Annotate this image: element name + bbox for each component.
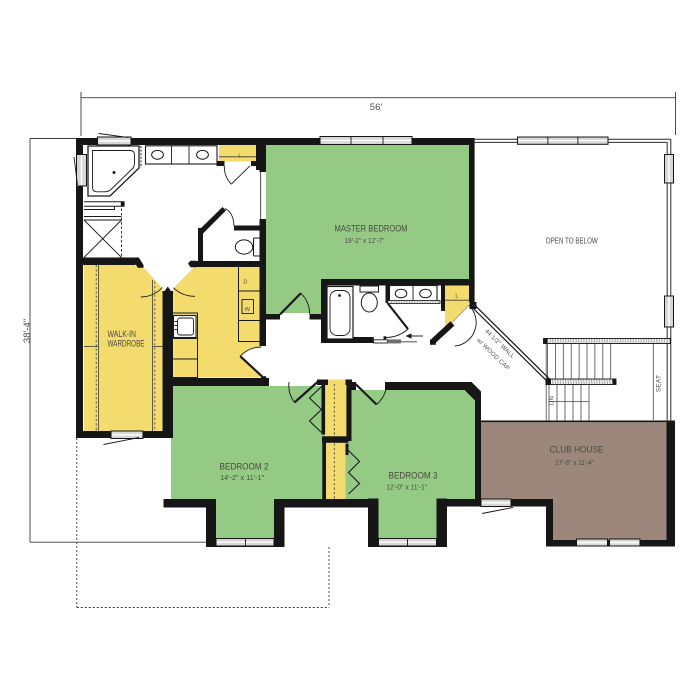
svg-text:CLUB HOUSE: CLUB HOUSE xyxy=(550,445,604,455)
svg-text:14'-2" x 11'-1": 14'-2" x 11'-1" xyxy=(220,475,264,482)
svg-text:MASTER BEDROOM: MASTER BEDROOM xyxy=(335,224,408,234)
svg-text:WARDROBE: WARDROBE xyxy=(108,339,145,349)
svg-text:WALK-IN: WALK-IN xyxy=(108,329,137,339)
svg-text:OPEN TO BELOW: OPEN TO BELOW xyxy=(546,236,598,246)
svg-text:38'-4": 38'-4" xyxy=(22,319,33,343)
svg-text:17'-8" x 11'-4": 17'-8" x 11'-4" xyxy=(555,460,594,467)
svg-text:L: L xyxy=(455,294,458,300)
svg-text:DN: DN xyxy=(550,396,556,405)
svg-text:W: W xyxy=(245,307,251,313)
svg-text:BEDROOM 3: BEDROOM 3 xyxy=(389,471,438,481)
svg-text:SEAT: SEAT xyxy=(656,375,663,392)
svg-text:12'-0" x 11'-1": 12'-0" x 11'-1" xyxy=(386,485,427,492)
svg-text:56': 56' xyxy=(370,102,383,113)
svg-text:19'-2" x 12'-7": 19'-2" x 12'-7" xyxy=(345,238,385,245)
svg-text:L: L xyxy=(238,154,241,160)
svg-text:D: D xyxy=(243,280,247,286)
svg-text:BEDROOM 2: BEDROOM 2 xyxy=(220,461,269,471)
